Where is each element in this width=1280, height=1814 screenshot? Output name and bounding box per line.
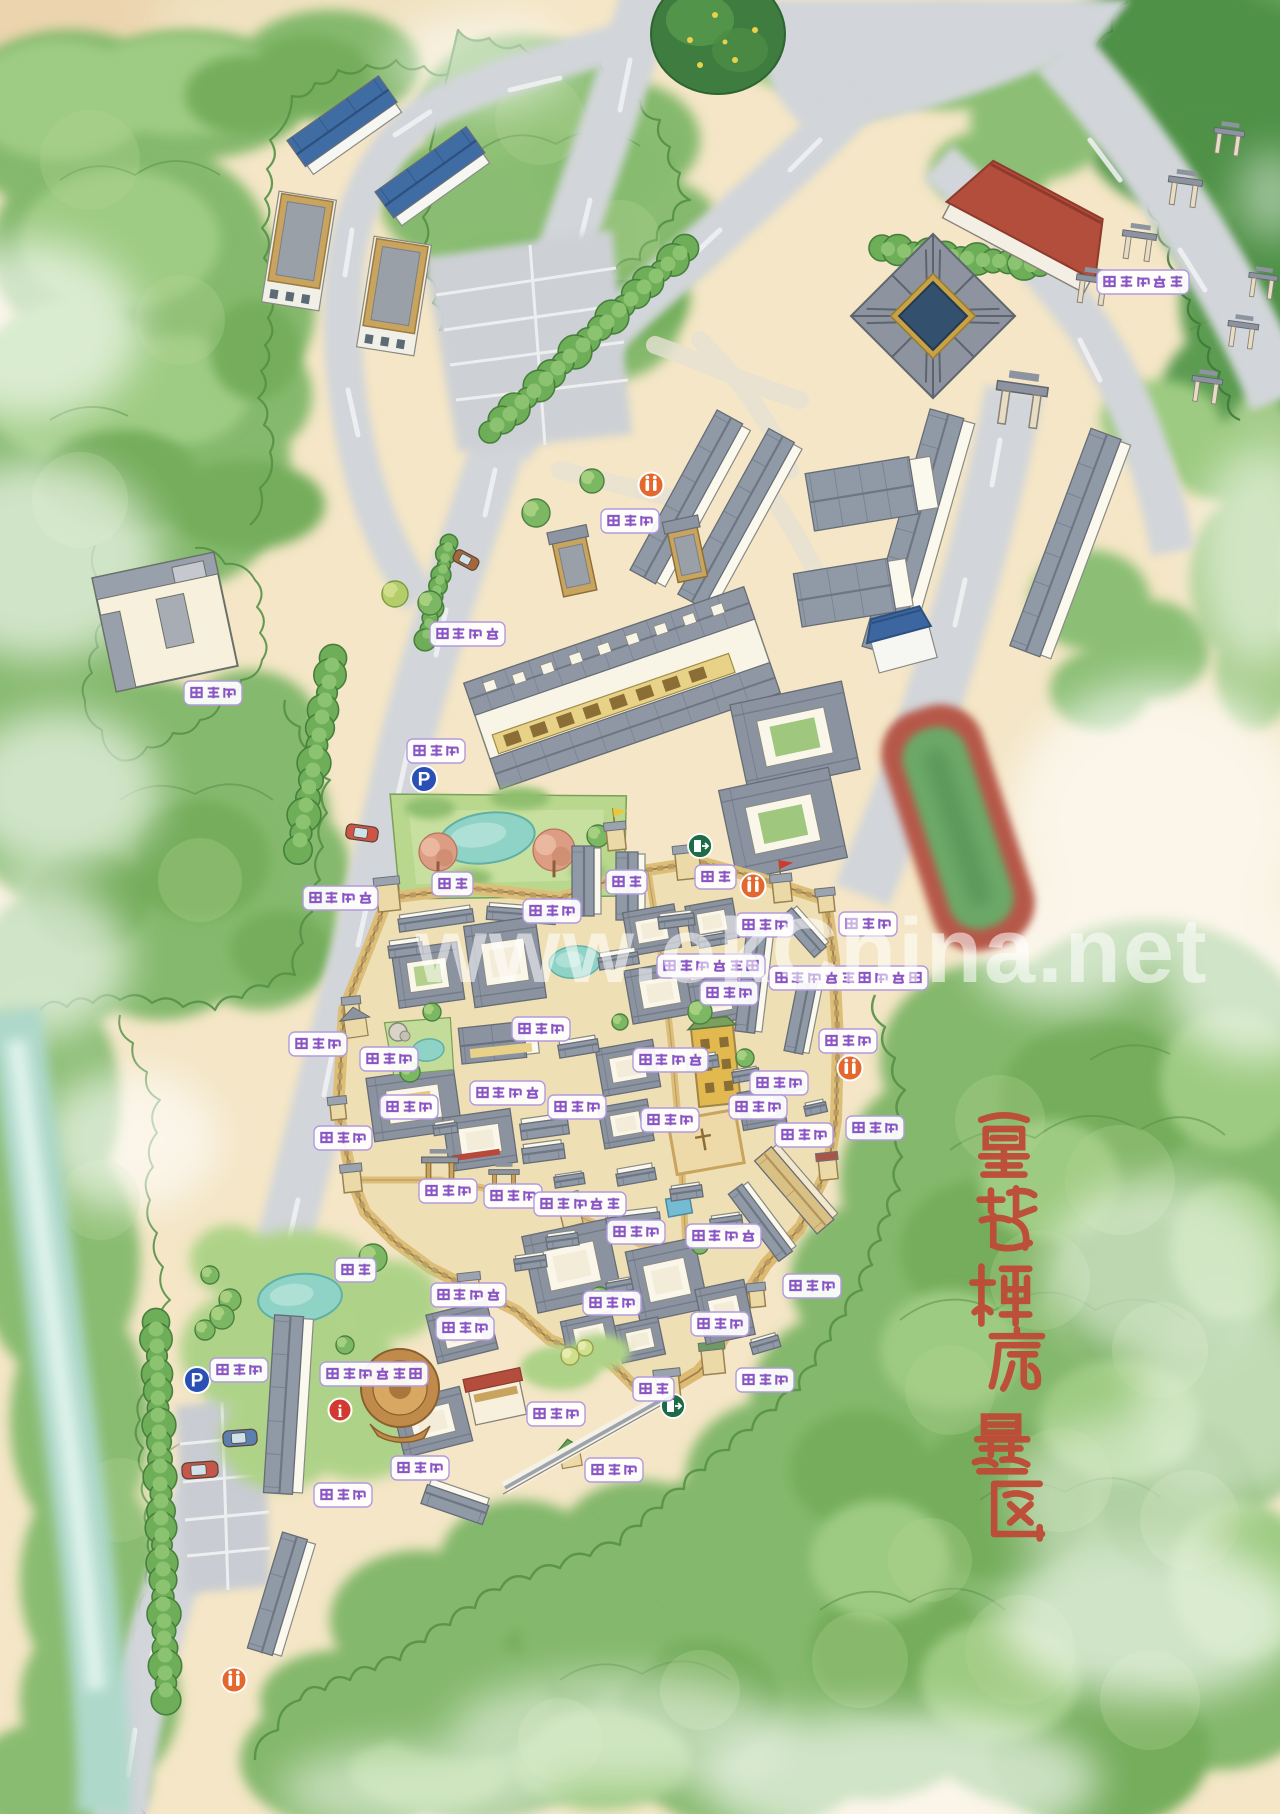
svg-text:www.okChina.net: www.okChina.net: [414, 900, 1208, 1002]
svg-text:i: i: [337, 1401, 342, 1421]
svg-text:P: P: [418, 770, 431, 791]
svg-text:P: P: [191, 1371, 204, 1392]
